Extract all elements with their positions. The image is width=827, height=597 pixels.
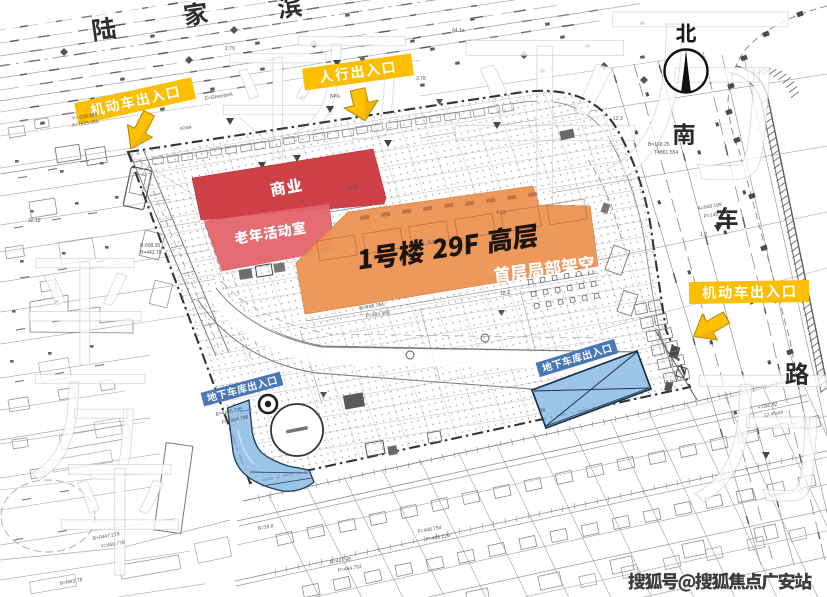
svg-text:B=442.78: B=442.78 [140, 250, 162, 256]
svg-text:B=168.25: B=168.25 [648, 142, 670, 148]
svg-text:4.19: 4.19 [496, 210, 506, 216]
svg-text:3.78: 3.78 [416, 76, 426, 82]
svg-text:64.1a: 64.1a [452, 28, 465, 34]
svg-text:84%: 84% [330, 94, 341, 100]
svg-text:4.59: 4.59 [348, 185, 358, 191]
svg-text:18.4: 18.4 [500, 291, 510, 297]
svg-text:4#: 4# [540, 408, 546, 414]
svg-text:6.0: 6.0 [666, 380, 673, 386]
svg-text:2.79: 2.79 [225, 46, 235, 52]
svg-text:T=861.554: T=861.554 [654, 150, 678, 156]
svg-text:32.19: 32.19 [28, 218, 41, 224]
svg-text:B-008.35: B-008.35 [140, 243, 161, 249]
svg-text:12.3: 12.3 [613, 116, 623, 122]
svg-text:5-9: 5-9 [428, 240, 435, 246]
svg-text:1.8: 1.8 [700, 232, 707, 238]
